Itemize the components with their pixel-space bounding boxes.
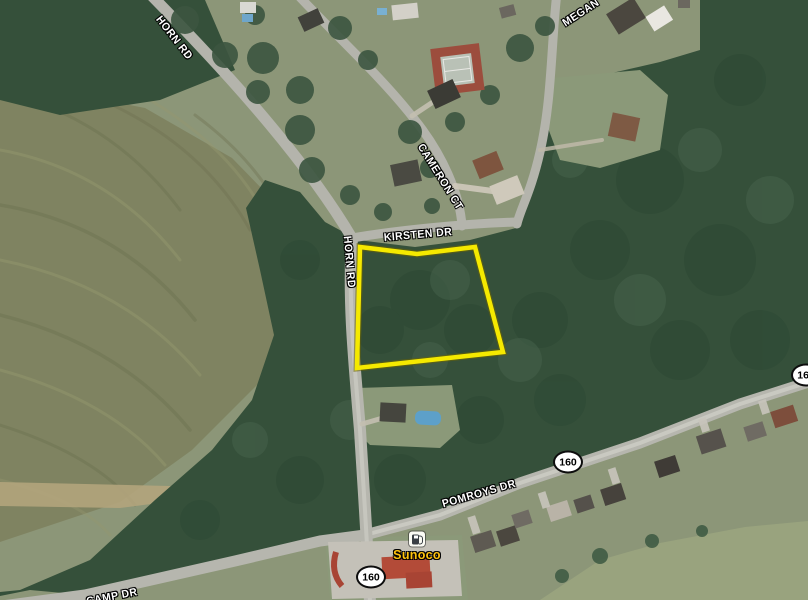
aerial-map-canvas[interactable]: HORN RD MEGAN CAMERON CT KIRSTEN DR HORN…: [0, 0, 808, 600]
gas-station-label: Sunoco: [393, 548, 441, 562]
aerial-imagery: [0, 0, 808, 600]
route-160-shield: 160: [553, 451, 583, 474]
route-160-shield: 160: [356, 566, 386, 589]
gas-pump-icon[interactable]: [409, 532, 425, 547]
